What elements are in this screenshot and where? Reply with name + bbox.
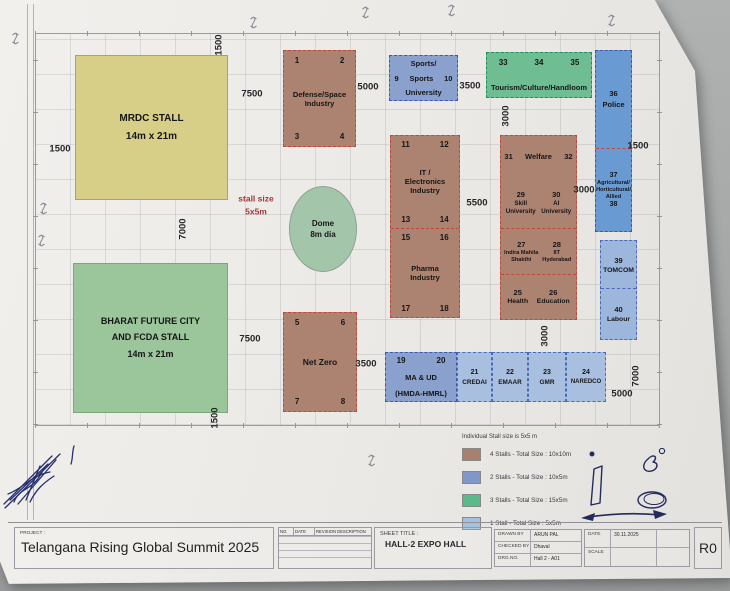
stall-column-it-pharma: 1112 IT /ElectronicsIndustry 1314 1516 P… (390, 135, 460, 318)
stall-skill-ai: 29Skill University 30AI University (501, 178, 576, 228)
handwritten-signature (0, 442, 95, 512)
dim-7000-left: 7000 (178, 218, 189, 239)
stall-police: 36 Police (596, 51, 631, 148)
stall-name: IT /ElectronicsIndustry (405, 168, 445, 195)
stall-name: Tourism/Culture/Handloom (491, 83, 587, 92)
stall-numbers: 333435 (499, 58, 580, 67)
stall-number: 16 (440, 233, 449, 242)
stall-size: 14m x 21m (126, 130, 177, 144)
stall-name: PharmaIndustry (410, 264, 440, 282)
stall-number: 13 (401, 215, 410, 224)
stall-sports-university: Sports/ 9Sports10 University (389, 55, 458, 101)
stall-name: Labour (607, 316, 630, 323)
paper-shadow: MRDC STALL 14m x 21m BHARAT FUTURE CITY … (0, 0, 730, 591)
stall-tomcom: 39 TOMCOM (601, 241, 636, 288)
stall-name: MRDC STALL (119, 112, 183, 126)
stall-column-welfare-health: 31Welfare32 29Skill University 30AI Univ… (500, 135, 577, 320)
stall-number: 12 (440, 140, 449, 149)
dimension-line-right (657, 33, 662, 425)
dim-3500-bottom: 3500 (355, 359, 376, 370)
dimension-line-bottom (35, 423, 660, 428)
stall-bharat-future-city: BHARAT FUTURE CITY AND FCDA STALL 14m x … (73, 263, 228, 413)
stall-name: Skill University (504, 200, 538, 214)
stall-number: 26 (549, 289, 557, 298)
stall-number: 29 (517, 191, 525, 200)
revision-number: R0 (694, 527, 722, 569)
project-label: PROJECT : (20, 531, 273, 536)
stall-number: 36 (609, 89, 617, 98)
drawing-sheet: MRDC STALL 14m x 21m BHARAT FUTURE CITY … (0, 0, 730, 591)
title-block: PROJECT : Telangana Rising Global Summit… (8, 522, 722, 574)
stall-number: 4 (340, 132, 344, 141)
dim-1500-right: 1500 (627, 141, 648, 152)
revision-table: NO. DATE REVISION DESCRIPTION (278, 527, 372, 569)
stall-name: TOMCOM (603, 267, 634, 274)
drg-no-value: Hall 2 - A01 (531, 554, 581, 566)
stall-strip-tomcom-labour: 39 TOMCOM 40 Labour (600, 240, 637, 340)
stall-name: Sports/ (411, 59, 437, 68)
stall-pharma: 1516 PharmaIndustry 1718 (391, 228, 459, 317)
stall-name: EMAAR (498, 379, 521, 386)
stall-number: 7 (295, 397, 299, 406)
sheet-title-label: SHEET TITLE : (380, 531, 491, 537)
dim-1500-bottom-left: 1500 (210, 407, 221, 428)
stall-indira-iith: 27Indira Mahila Shakthi 28IIT Hyderabad (501, 228, 576, 275)
dim-7500-bottom: 7500 (239, 334, 260, 345)
stall-number: 24 (582, 369, 590, 376)
stall-size-note: stall size 5x5m (238, 192, 273, 218)
stall-number: 15 (401, 233, 410, 242)
stall-name: AND FCDA STALL (112, 331, 190, 344)
drawn-by-label: DRAWN BY (495, 530, 531, 542)
drg-no-label: DRG.NO. (495, 554, 531, 566)
stall-name: BHARAT FUTURE CITY (101, 315, 200, 328)
stall-number: 34 (535, 58, 544, 67)
stall-number: 5 (295, 318, 299, 327)
stall-number: 22 (506, 369, 514, 376)
stall-number: 11 (401, 140, 409, 149)
break-mark-icon (246, 12, 261, 29)
stall-name: Health (507, 298, 528, 306)
stall-number: 17 (401, 304, 410, 313)
stall-numbers: 34 (295, 132, 345, 141)
stall-name: Horticultural/ (596, 187, 631, 193)
stall-number: 25 (514, 289, 522, 298)
stall-numbers: 12 (295, 56, 345, 65)
dome-label: Dome (312, 219, 334, 228)
photo-background: MRDC STALL 14m x 21m BHARAT FUTURE CITY … (0, 0, 730, 591)
checked-by-value: Dhaval (531, 542, 581, 554)
break-mark-icon (444, 0, 459, 17)
stall-skill-university: 29Skill University (504, 191, 538, 215)
stall-number: 21 (471, 369, 479, 376)
legend-swatch-green (462, 494, 481, 507)
floor-plan: MRDC STALL 14m x 21m BHARAT FUTURE CITY … (35, 33, 660, 425)
dim-7500-top: 7500 (241, 89, 262, 100)
stall-number: 9 (395, 74, 399, 83)
drawn-by-table: DRAWN BY ARUN PAL CHECKED BY Dhaval DRG.… (494, 529, 582, 567)
stall-numbers: 56 (295, 318, 345, 327)
stall-numbers: 1920 (397, 356, 446, 365)
stall-name: CREDAI (462, 379, 487, 386)
stall-number: 31 (504, 152, 512, 161)
stall-it-electronics: 1112 IT /ElectronicsIndustry 1314 (391, 136, 459, 228)
date-label: DATE (585, 530, 611, 548)
stall-welfare: 31Welfare32 (501, 136, 576, 178)
dim-1500-top: 1500 (214, 34, 225, 55)
sheet-title: HALL-2 EXPO HALL (385, 539, 491, 549)
revision-table-rows (279, 536, 371, 564)
stall-number: 3 (295, 132, 299, 141)
legend-row: 2 Stalls - Total Size : 10x5m (462, 471, 702, 484)
scale-label: SCALE (585, 548, 611, 566)
stall-name: Agricultural/ (597, 180, 630, 186)
stall-number: 27 (517, 241, 525, 250)
stall-number: 6 (341, 318, 345, 327)
stall-number: 35 (570, 58, 579, 67)
stall-name: Police (602, 100, 624, 109)
stall-name: Indira Mahila Shakthi (503, 250, 539, 263)
stall-numbers: 1718 (401, 304, 448, 313)
stall-health: 25Health (507, 289, 528, 306)
dome-size: 8m dia (310, 230, 335, 239)
stall-labour: 40 Labour (601, 288, 636, 339)
title-block-border (8, 522, 722, 523)
stall-number: 1 (295, 56, 299, 65)
stall-numbers: 1112 (401, 140, 448, 149)
stall-number: 20 (437, 356, 446, 365)
dimension-line-top (35, 31, 660, 36)
stall-gmr: 23 GMR (528, 352, 566, 402)
dim-5000-bottom-right: 5000 (611, 389, 632, 400)
stall-name: Net Zero (303, 357, 337, 367)
stall-numbers: 78 (295, 397, 345, 406)
date-value: 30.11.2025 (611, 530, 657, 548)
stall-number: 23 (543, 369, 551, 376)
dim-3500-top: 3500 (459, 81, 480, 92)
stall-defense-space: 12 Defense/SpaceIndustry 34 (283, 50, 356, 147)
stall-mrdc: MRDC STALL 14m x 21m (75, 55, 228, 200)
dim-7000-bottom-right: 7000 (631, 365, 642, 386)
scale-value (611, 548, 657, 566)
dome: Dome 8m dia (289, 186, 357, 272)
stall-name: Education (537, 298, 570, 306)
stall-tourism-culture-handloom: 333435 Tourism/Culture/Handloom (486, 52, 592, 98)
stall-number: 18 (440, 304, 449, 313)
dim-3000-right: 3000 (573, 185, 594, 196)
legend-row: 3 Stalls - Total Size : 15x5m (462, 494, 702, 507)
dim-5500-mid: 5500 (466, 198, 487, 209)
stall-name: NAREDCO (571, 379, 601, 385)
dim-1500-left: 1500 (49, 144, 70, 155)
stall-name: University (405, 88, 441, 97)
legend-swatch-blue (462, 471, 481, 484)
stall-numbers: 1516 (401, 233, 448, 242)
stall-number: 32 (564, 152, 572, 161)
stall-ma-ud: 1920 MA & UD (HMDA-HMRL) (385, 352, 457, 402)
stall-number: 2 (340, 56, 344, 65)
stall-indira-mahila-shakthi: 27Indira Mahila Shakthi (503, 241, 539, 263)
dim-3000-tourism: 3000 (501, 105, 512, 126)
stall-numbers: 1314 (401, 215, 448, 224)
stall-name: MA & UD (405, 373, 437, 382)
sheet-border-line (27, 4, 28, 520)
revision-table-header: NO. DATE REVISION DESCRIPTION (279, 528, 371, 536)
stall-health-education: 25Health 26Education (501, 274, 576, 319)
stall-number: 40 (614, 305, 622, 314)
stall-emaar: 22 EMAAR (492, 352, 528, 402)
stall-name: AI University (539, 200, 573, 214)
stall-name: (HMDA-HMRL) (395, 389, 447, 398)
stall-number: 37 (610, 172, 618, 179)
stall-net-zero: 56 Net Zero 78 (283, 312, 357, 412)
date-scale-table: DATE 30.11.2025 SCALE (584, 529, 690, 567)
checked-by-label: CHECKED BY (495, 542, 531, 554)
stall-iit-hyderabad: 28IIT Hyderabad (540, 241, 574, 263)
stall-name: GMR (540, 379, 555, 386)
stall-number: 38 (610, 201, 618, 208)
stall-credai: 21 CREDAI (457, 352, 492, 402)
legend-row: 4 Stalls - Total Size : 10x10m (462, 448, 702, 461)
break-mark-icon (358, 2, 373, 19)
stall-number: 39 (614, 256, 622, 265)
stall-number: 10 (444, 74, 452, 83)
project-name: Telangana Rising Global Summit 2025 (21, 539, 273, 555)
stall-name: Welfare (525, 152, 552, 161)
stall-number: 19 (397, 356, 406, 365)
drawn-by-value: ARUN PAL (531, 530, 581, 542)
stall-number: 30 (552, 191, 560, 200)
stall-number: 14 (440, 215, 449, 224)
stall-name: Allied (606, 194, 621, 200)
stall-name: IIT Hyderabad (540, 250, 574, 263)
stall-name: Defense/SpaceIndustry (293, 90, 346, 108)
stall-ai-university: 30AI University (539, 191, 573, 215)
stall-number: 28 (553, 241, 561, 250)
stall-naredco: 24 NAREDCO (566, 352, 606, 402)
break-mark-icon (604, 10, 619, 27)
dim-5000-top: 5000 (357, 82, 378, 93)
sheet-title-box: SHEET TITLE : HALL-2 EXPO HALL (374, 527, 492, 569)
stall-number: 8 (341, 397, 345, 406)
break-mark-icon (8, 28, 23, 45)
break-mark-icon (364, 450, 379, 467)
dim-3000-mid: 3000 (540, 325, 551, 346)
stall-number: 33 (499, 58, 508, 67)
stall-size: 14m x 21m (127, 348, 173, 361)
stall-numbers: 9Sports10 (395, 74, 453, 83)
project-box: PROJECT : Telangana Rising Global Summit… (14, 527, 274, 569)
legend-note: Individual Stall size is 5x5 m (462, 434, 702, 440)
dimension-line-left (33, 33, 38, 425)
legend-swatch-brown (462, 448, 481, 461)
stall-agricultural: 37 Agricultural/ Horticultural/ Allied 3… (596, 148, 631, 231)
stall-education: 26Education (537, 289, 570, 306)
